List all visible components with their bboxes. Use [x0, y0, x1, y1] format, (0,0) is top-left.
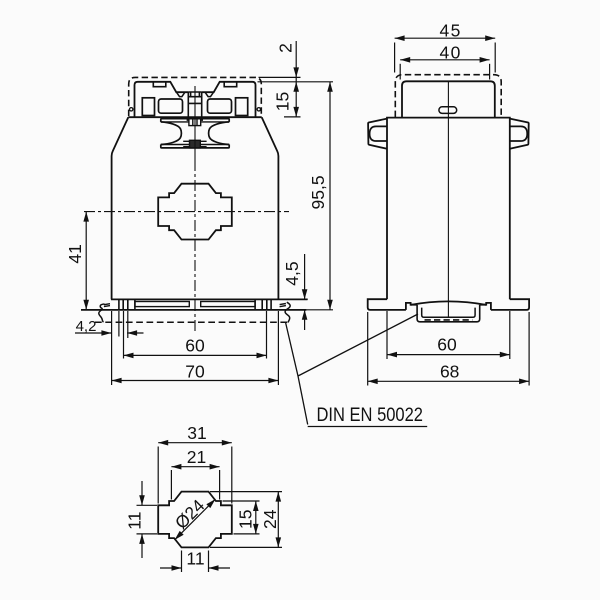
svg-text:4,2: 4,2: [76, 318, 97, 335]
svg-text:60: 60: [185, 336, 205, 356]
svg-text:15: 15: [236, 509, 256, 528]
svg-text:11: 11: [125, 512, 145, 530]
svg-text:DIN EN 50022: DIN EN 50022: [317, 405, 424, 426]
svg-text:41: 41: [65, 244, 85, 263]
svg-text:21: 21: [187, 447, 206, 467]
svg-text:24: 24: [260, 509, 280, 529]
svg-text:2: 2: [276, 43, 296, 53]
svg-text:68: 68: [440, 361, 459, 381]
svg-text:4,5: 4,5: [282, 261, 302, 285]
svg-text:Ø24: Ø24: [171, 495, 209, 533]
svg-text:60: 60: [437, 335, 457, 355]
svg-text:45: 45: [439, 21, 461, 41]
svg-text:40: 40: [439, 42, 461, 62]
svg-text:11: 11: [186, 549, 204, 569]
svg-text:15: 15: [273, 92, 293, 111]
svg-text:31: 31: [187, 423, 206, 443]
svg-text:95,5: 95,5: [308, 175, 328, 209]
svg-text:70: 70: [185, 362, 205, 382]
